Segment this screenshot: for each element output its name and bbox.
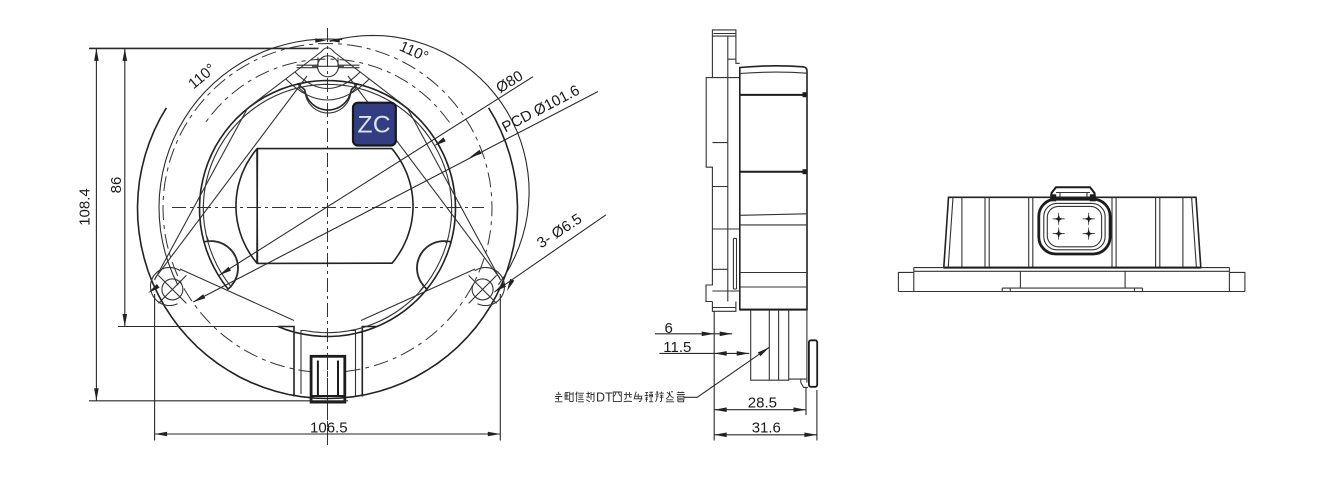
svg-text:108.4: 108.4 — [77, 188, 94, 226]
svg-text:ZC: ZC — [357, 112, 391, 139]
svg-text:106.5: 106.5 — [310, 420, 348, 437]
svg-text:DT: DT — [596, 391, 613, 405]
svg-text:28.5: 28.5 — [748, 394, 777, 411]
svg-text:86: 86 — [108, 177, 125, 194]
svg-text:31.6: 31.6 — [752, 419, 781, 436]
